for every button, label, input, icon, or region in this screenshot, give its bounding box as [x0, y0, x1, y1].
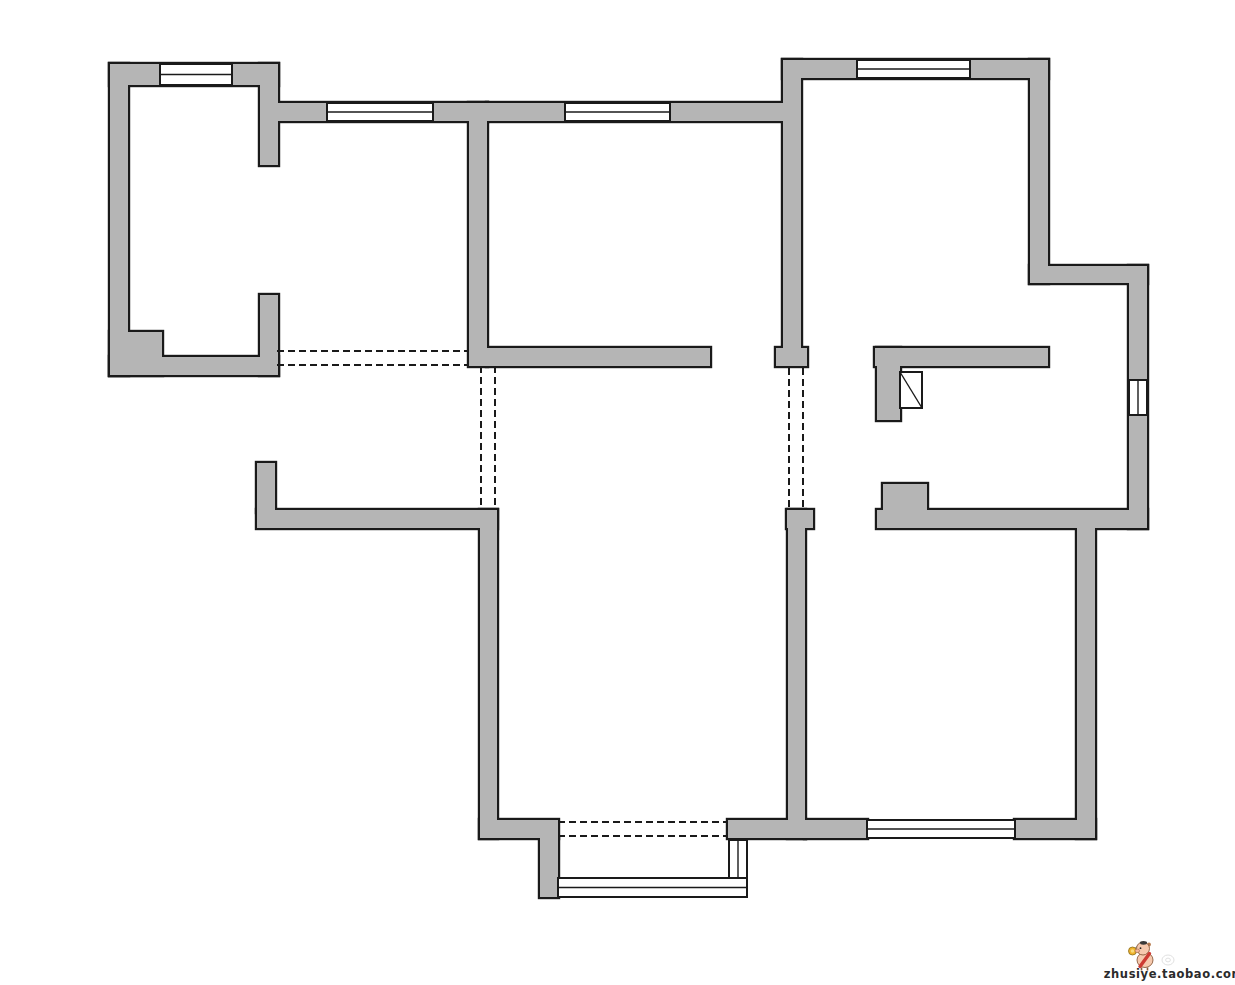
livingroom-bedroom4-wall — [788, 510, 805, 838]
bathroom-door-stub — [877, 348, 900, 420]
floor-plan: zhusiye.taobao.com — [0, 0, 1235, 985]
livingroom-left-wall — [480, 510, 497, 838]
divider-wall-foot — [776, 348, 807, 366]
faint-stamp-icon — [1162, 955, 1174, 965]
bedroom1-right-wall-upper — [260, 64, 278, 165]
livingroom-bottom-wall-left — [480, 820, 558, 838]
bedroom2-bedroom3-divider — [783, 60, 801, 348]
bedroom1-corner-pier — [110, 332, 162, 375]
watermark: zhusiye.taobao.com — [1104, 941, 1235, 981]
floorplan-canvas: zhusiye.taobao.com — [0, 0, 1235, 985]
bedroom3-bottom-wall — [875, 348, 1048, 366]
bathroom-bottom-wall — [877, 510, 1147, 528]
window-layer — [160, 60, 1147, 897]
bedroom4-bottom-wall-left — [805, 820, 867, 838]
opening-layer — [277, 351, 803, 836]
wall-layer — [110, 60, 1147, 897]
bathroom-door-block — [883, 484, 927, 512]
lower-left-outer-wall — [257, 510, 497, 528]
entry-stub-wall — [257, 463, 275, 512]
watermark-text: zhusiye.taobao.com — [1104, 967, 1235, 981]
bedroom2-bottom-wall — [487, 348, 710, 366]
bedroom1-left-wall — [110, 64, 128, 375]
bedroom4-right-wall — [1077, 512, 1095, 838]
flue-layer — [900, 372, 922, 408]
bedroom3-right-wall — [1030, 60, 1048, 283]
balcony-left-wall — [540, 838, 558, 897]
bedroom2-left-wall — [469, 103, 487, 366]
